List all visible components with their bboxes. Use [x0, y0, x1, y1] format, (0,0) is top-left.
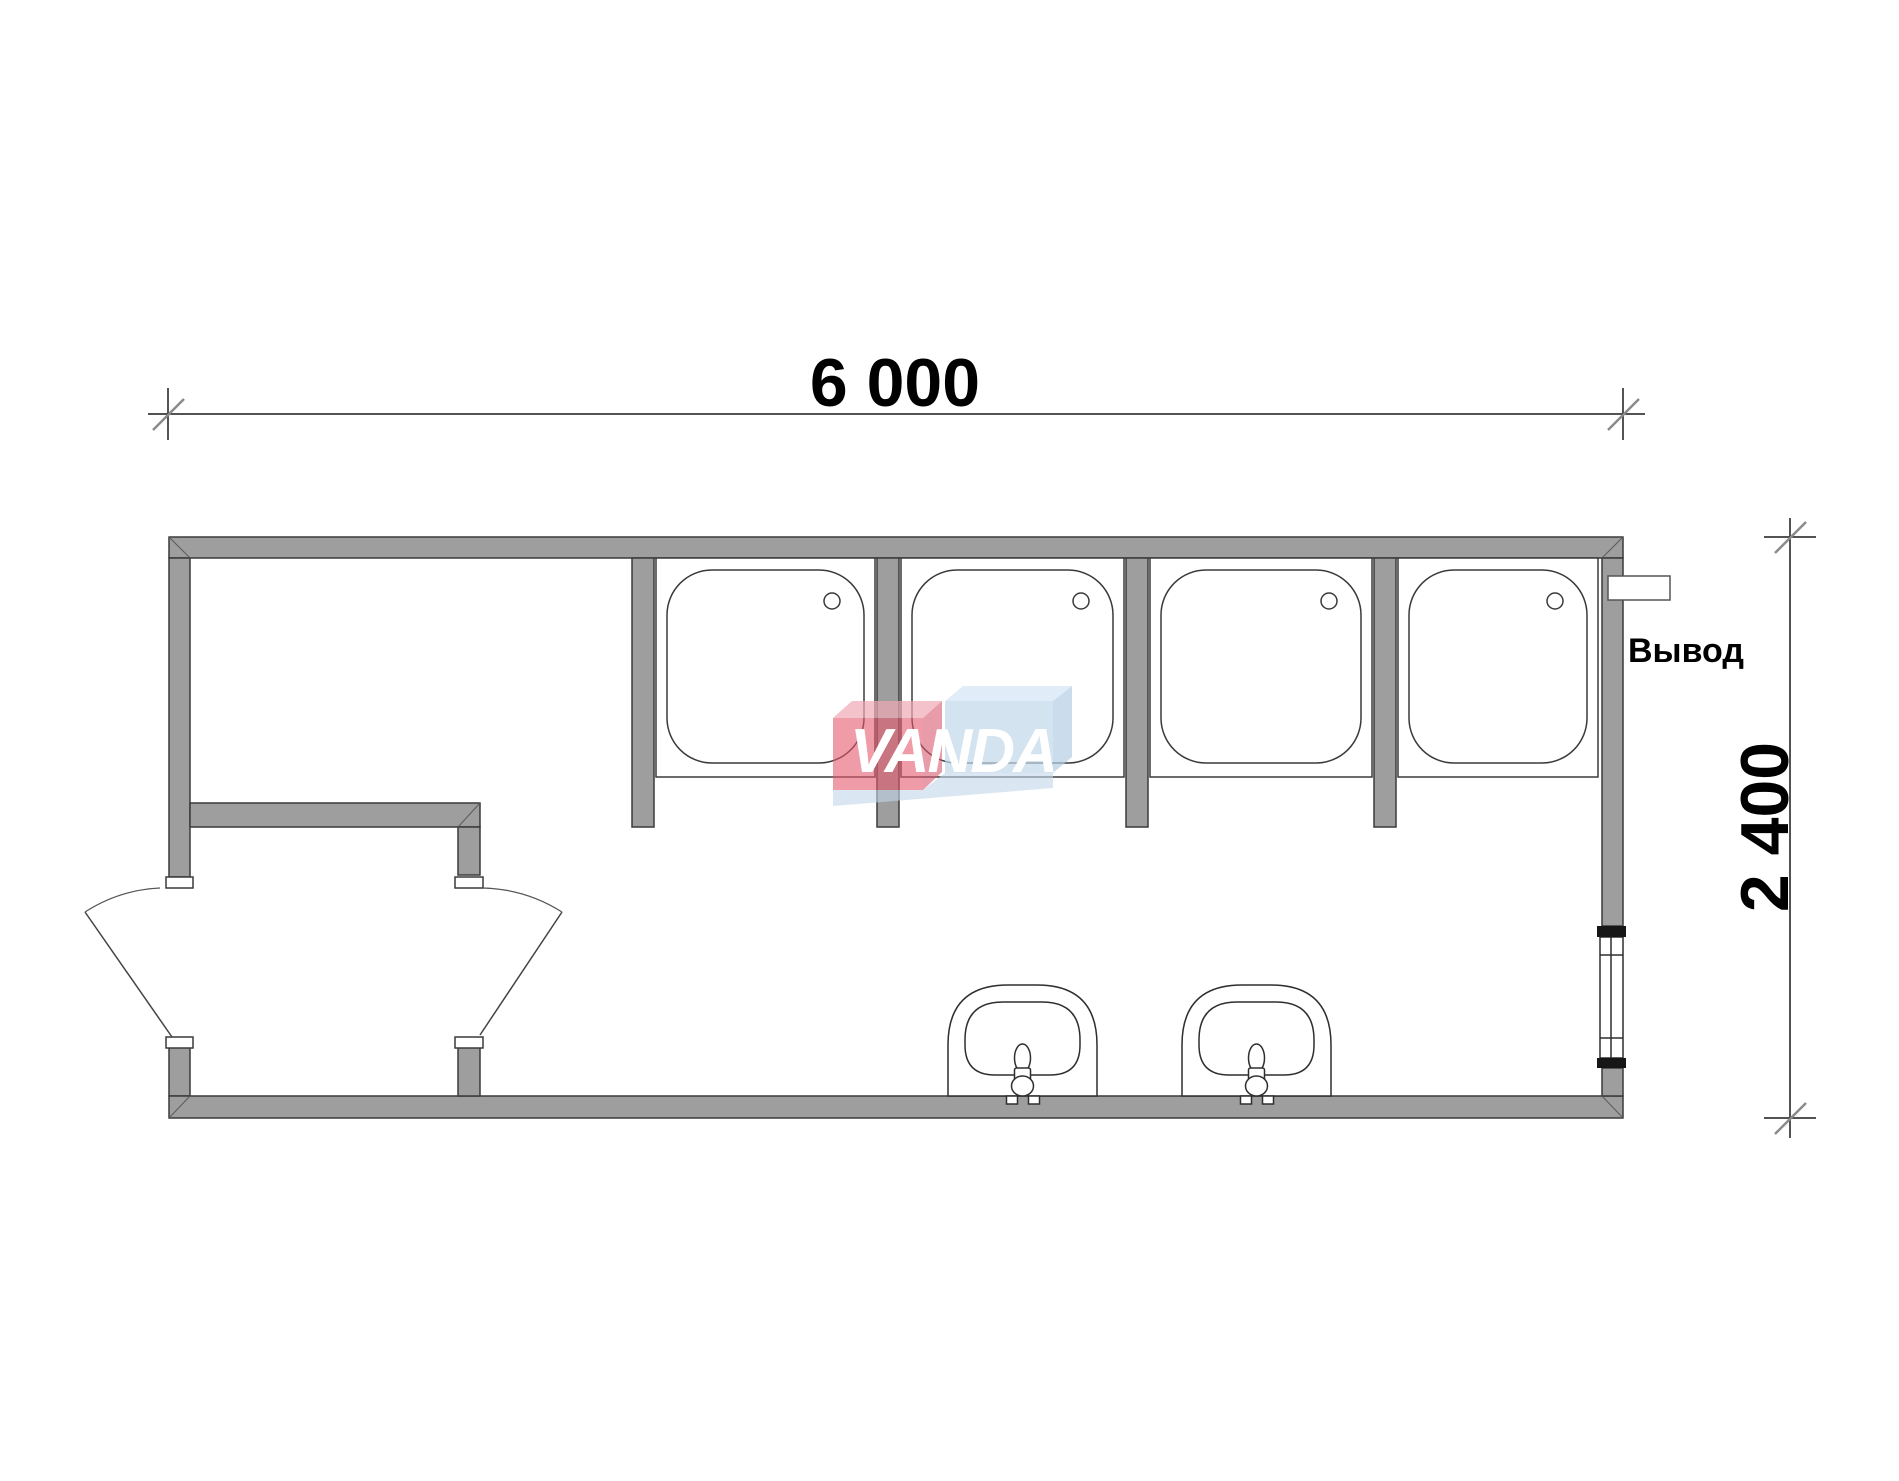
floor-plan-page: 6 000 2 400: [0, 0, 1899, 1481]
outlet-label: Вывод: [1628, 632, 1744, 670]
shower-drain-icon: [824, 593, 840, 609]
right-dimension: 2 400: [1727, 518, 1816, 1138]
watermark-red-top-face: [833, 701, 942, 718]
vestibule-wall-top: [190, 803, 480, 827]
wall-right-lower: [1602, 1068, 1623, 1096]
washbasin-mount-tab: [1029, 1096, 1040, 1104]
washbasins: [948, 985, 1331, 1104]
window-cap-top: [1597, 926, 1626, 937]
outlet: Вывод: [1608, 576, 1744, 670]
shower-partition-wall: [1126, 558, 1148, 827]
shower-drain-icon: [1073, 593, 1089, 609]
dimension-width-label: 6 000: [810, 345, 980, 421]
shower-partition-wall: [632, 558, 654, 827]
entrance-door-swing-arc: [85, 888, 160, 912]
washbasin-mount-tab: [1263, 1096, 1274, 1104]
entrance-door-jamb-top: [166, 877, 193, 888]
washbasin-mount-tab: [1241, 1096, 1252, 1104]
window: [1597, 926, 1626, 1068]
faucet-spout: [1012, 1076, 1034, 1096]
wall-left-upper: [169, 558, 190, 877]
watermark-blue-top-face: [945, 686, 1072, 701]
doors: [85, 888, 562, 1037]
watermark-text: VANDA: [850, 717, 1056, 786]
shower-partition-wall: [1374, 558, 1396, 827]
window-cap-bottom: [1597, 1058, 1626, 1068]
vestibule-wall-right-upper: [458, 827, 480, 875]
inner-door-jamb-bottom: [455, 1037, 483, 1048]
dimension-height-label: 2 400: [1727, 742, 1803, 912]
washbasin-mount-tab: [1007, 1096, 1018, 1104]
wall-left-lower: [169, 1047, 190, 1096]
inner-door-leaf: [480, 912, 562, 1035]
vanda-watermark: VANDA: [833, 686, 1072, 806]
inner-door-swing-arc: [483, 888, 562, 912]
entrance-door-leaf: [85, 912, 172, 1037]
inner-door-jamb-top: [455, 877, 483, 888]
floor-plan-canvas: 6 000 2 400: [0, 0, 1899, 1481]
vestibule-walls: [190, 803, 480, 1096]
door-jambs: [166, 877, 483, 1048]
washbasin: [1182, 985, 1331, 1104]
shower-tray: [1150, 558, 1372, 777]
wall-right-upper: [1602, 558, 1623, 926]
shower-tray: [1398, 558, 1598, 777]
entrance-door-jamb-bottom: [166, 1037, 193, 1048]
wall-bottom: [169, 1096, 1623, 1118]
shower-drain-icon: [1547, 593, 1563, 609]
outlet-marker: [1608, 576, 1670, 600]
vestibule-wall-right-lower: [458, 1047, 480, 1096]
faucet-spout: [1246, 1076, 1268, 1096]
washbasin: [948, 985, 1097, 1104]
shower-drain-icon: [1321, 593, 1337, 609]
wall-top: [169, 537, 1623, 558]
top-dimension: 6 000: [148, 345, 1645, 440]
